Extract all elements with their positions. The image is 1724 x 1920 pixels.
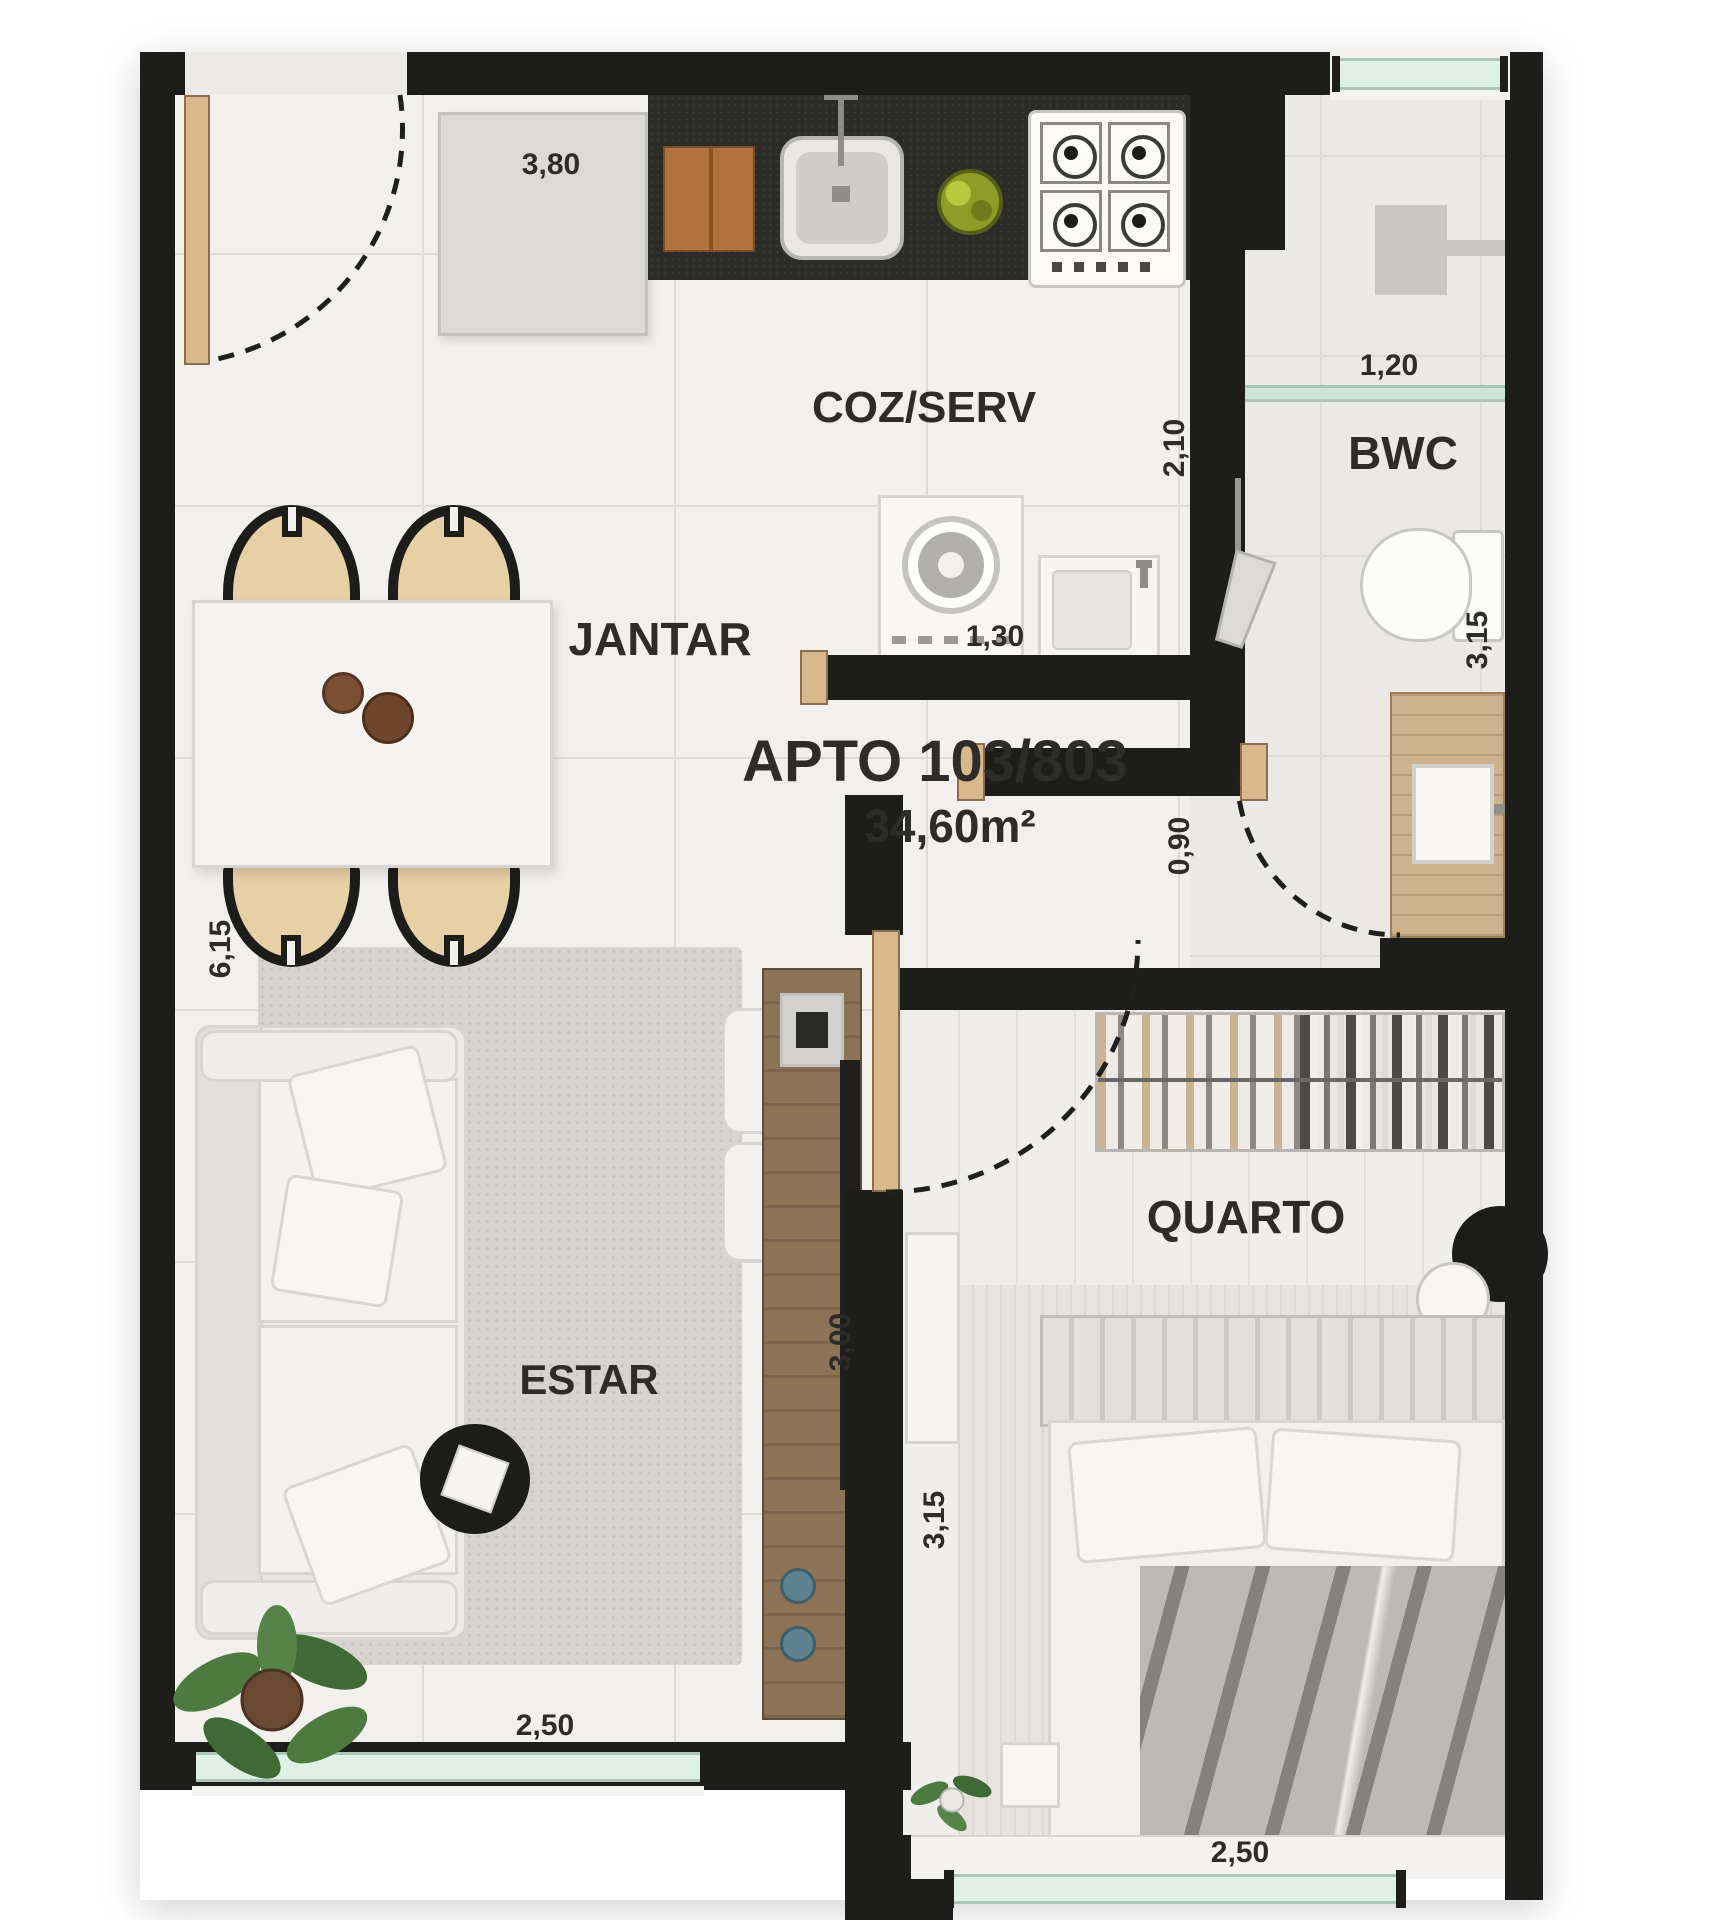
dim-bedroom-length: 3,15 (920, 1460, 950, 1580)
room-label-bedroom: QUARTO (1116, 1194, 1376, 1240)
dim-bedroom-door: 0,90 (1165, 786, 1195, 906)
plan-overlay (0, 0, 1724, 1920)
bwc-door-arc (1237, 773, 1400, 935)
shower-head-icon (1209, 478, 1275, 649)
room-label-kitchen-service: COZ/SERV (764, 386, 1084, 430)
floor-plan: 3,80 1,20 2,10 1,30 3,15 0,90 6,15 3,00 … (0, 0, 1724, 1920)
apartment-area: 34,60m² (810, 802, 1090, 850)
dim-bedroom-window: 2,50 (1180, 1838, 1300, 1868)
bedroom-door-arc (886, 940, 1138, 1192)
dim-kitchen-width: 3,80 (491, 150, 611, 180)
apartment-title: APTO 103/803 (705, 732, 1165, 792)
dim-living-width: 3,00 (826, 1282, 856, 1402)
room-label-living: ESTAR (509, 1358, 669, 1402)
room-label-dining: JANTAR (550, 616, 770, 662)
dim-living-window: 2,50 (485, 1711, 605, 1741)
dim-kitchen-depth: 2,10 (1160, 388, 1190, 508)
dim-service-width: 1,30 (935, 622, 1055, 652)
dim-living-length: 6,15 (206, 889, 236, 1009)
dim-bwc-length: 3,15 (1463, 580, 1493, 700)
plant-small (907, 1771, 994, 1836)
room-label-bathroom: BWC (1323, 430, 1483, 476)
entrance-door-arc (212, 95, 403, 360)
dim-bwc-width: 1,20 (1329, 351, 1449, 381)
plant (164, 1605, 376, 1790)
